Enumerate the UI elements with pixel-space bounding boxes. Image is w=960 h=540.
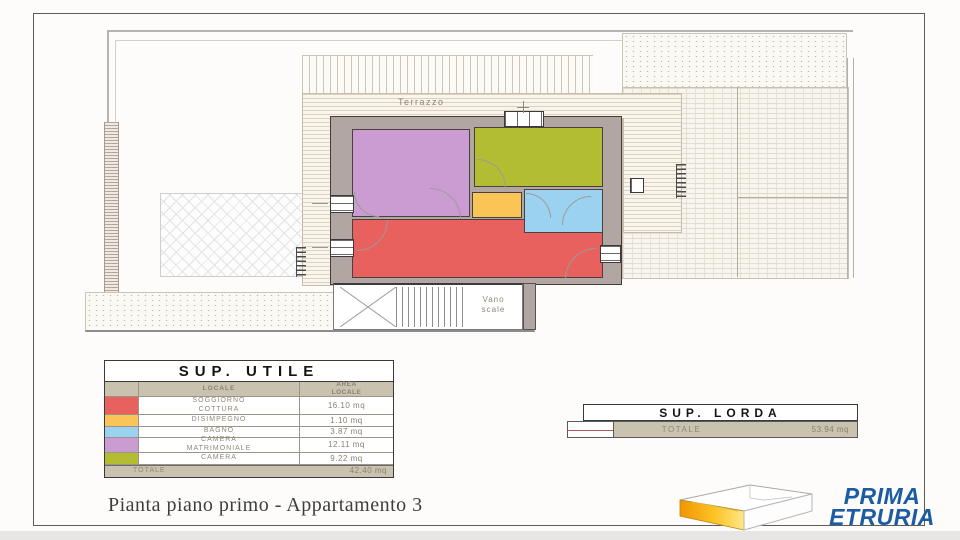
roof-stipple-right bbox=[622, 33, 847, 89]
total-value: 42.40 mq bbox=[299, 466, 393, 477]
roof-outline-left-inner bbox=[115, 40, 116, 122]
lower-roof-crosshatch bbox=[160, 193, 307, 277]
terrace-steps-left bbox=[296, 247, 306, 277]
window-left-lower bbox=[330, 239, 354, 257]
dimension-tick-upper bbox=[312, 203, 328, 204]
swatch-disimpegno bbox=[105, 415, 139, 426]
legend-area: 9.22 mq bbox=[299, 453, 393, 464]
floor-plan-sheet: Terrazzo Vano scale SUP. UTILE LOCALE AR… bbox=[0, 0, 960, 540]
stair-treads bbox=[396, 287, 466, 327]
legend-row-camera-matrimoniale: CAMERA MATRIMONIALE 12.11 mq bbox=[105, 438, 393, 453]
window-right bbox=[600, 245, 621, 263]
sup-utile-header-row: LOCALE AREA LOCALE bbox=[105, 382, 393, 397]
company-logo: PRIMA ETRURIA bbox=[672, 478, 948, 536]
legend-area: 3.87 mq bbox=[299, 427, 393, 438]
roof-outline-top bbox=[107, 30, 853, 32]
room-disimpegno bbox=[472, 192, 522, 218]
entry-door-top bbox=[504, 111, 544, 127]
swatch-bagno bbox=[105, 427, 139, 438]
window-left-upper bbox=[330, 195, 354, 213]
sup-lorda-swatch-cell bbox=[568, 422, 614, 437]
door-axis-cross-icon bbox=[517, 101, 529, 113]
stair-flight-cross bbox=[340, 287, 397, 327]
terrace-label: Terrazzo bbox=[398, 97, 445, 107]
stair-wall-stub bbox=[523, 283, 536, 330]
col-locale: LOCALE bbox=[139, 382, 299, 396]
sup-lorda-total-label: TOTALE bbox=[614, 425, 749, 434]
sup-lorda-table: TOTALE 53.94 mq bbox=[567, 421, 858, 438]
sup-utile-title: SUP. UTILE bbox=[105, 361, 393, 382]
terrace-steps-right bbox=[676, 164, 686, 198]
terrace-brick-divider-v bbox=[737, 87, 738, 277]
terrace-band-right bbox=[623, 118, 682, 233]
legend-row-camera: CAMERA 9.22 mq bbox=[105, 453, 393, 465]
legend-area: 1.10 mq bbox=[299, 415, 393, 426]
legend-name: CAMERA bbox=[139, 453, 299, 464]
stairwell-label: Vano scale bbox=[466, 295, 521, 316]
legend-total-row: TOTALE 42.40 mq bbox=[105, 465, 393, 477]
terrace-brick-divider-h bbox=[738, 197, 847, 198]
swatch-camera bbox=[105, 453, 139, 464]
legend-row-disimpegno: DISIMPEGNO 1.10 mq bbox=[105, 415, 393, 427]
staircase: Vano scale bbox=[333, 283, 523, 330]
legend-name: CAMERA MATRIMONIALE bbox=[139, 438, 299, 452]
red-divider-line bbox=[568, 422, 613, 431]
sup-lorda-total-value: 53.94 mq bbox=[749, 425, 857, 434]
sup-lorda-total-row: TOTALE 53.94 mq bbox=[614, 422, 857, 437]
roof-edge-double-line bbox=[847, 58, 854, 278]
sup-utile-table: SUP. UTILE LOCALE AREA LOCALE SOGGIORNO … bbox=[104, 360, 394, 478]
logo-box-icon bbox=[672, 478, 816, 536]
logo-wordmark: PRIMA ETRURIA bbox=[816, 486, 948, 528]
col-area-locale: AREA LOCALE bbox=[299, 382, 393, 396]
pergola-hatch bbox=[302, 55, 593, 95]
legend-name: SOGGIORNO COTTURA bbox=[139, 397, 299, 414]
roof-outline-top-inner bbox=[115, 40, 622, 41]
sup-lorda-title: SUP. LORDA bbox=[583, 404, 858, 421]
legend-swatch-header bbox=[105, 382, 139, 396]
legend-area: 12.11 mq bbox=[299, 438, 393, 452]
legend-row-soggiorno: SOGGIORNO COTTURA 16.10 mq bbox=[105, 397, 393, 415]
total-label: TOTALE bbox=[105, 466, 299, 477]
dimension-tick-lower bbox=[312, 247, 328, 248]
legend-name: DISIMPEGNO bbox=[139, 415, 299, 426]
legend-area: 16.10 mq bbox=[299, 397, 393, 414]
swatch-camera-matrimoniale bbox=[105, 438, 139, 452]
drawing-title: Pianta piano primo - Appartamento 3 bbox=[108, 494, 423, 517]
terrace-door-symbol bbox=[630, 178, 644, 193]
swatch-soggiorno bbox=[105, 397, 139, 414]
logo-line2: ETRURIA bbox=[816, 507, 948, 528]
